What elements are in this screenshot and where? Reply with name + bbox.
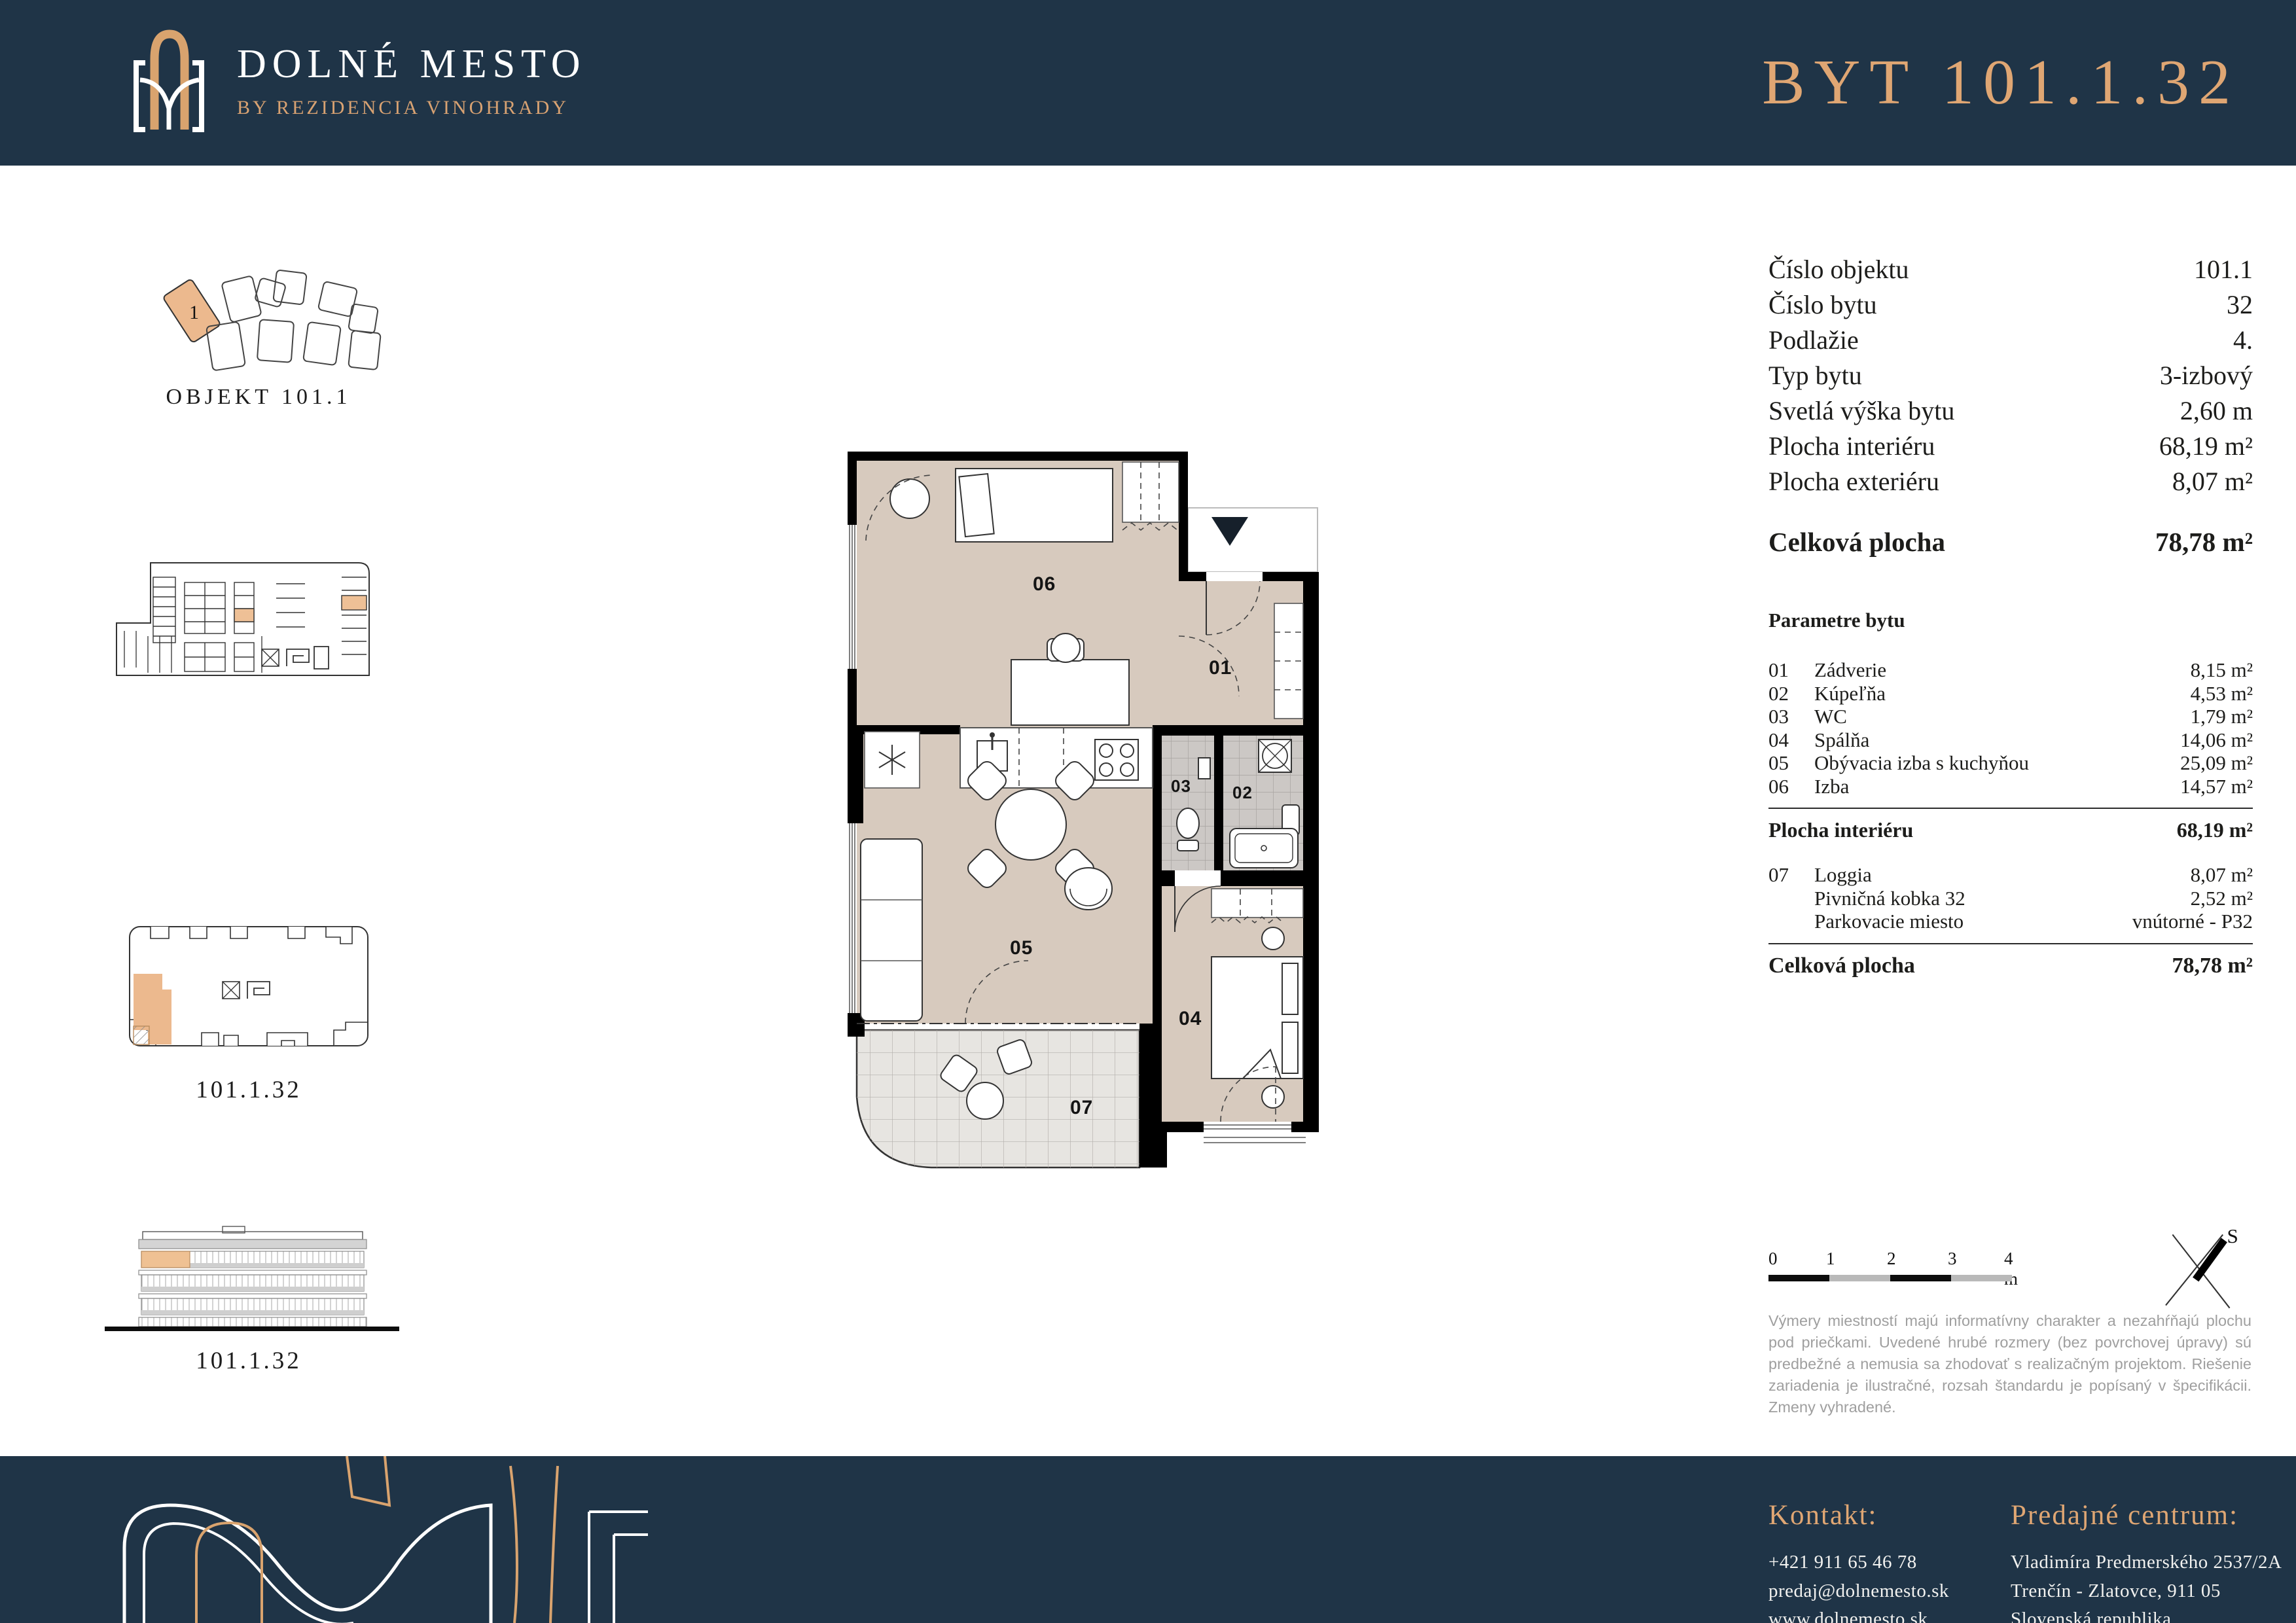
dm-monogram-icon bbox=[126, 25, 212, 135]
north-label: S bbox=[2227, 1225, 2238, 1247]
room-05-label: 05 bbox=[1010, 937, 1033, 959]
footer-sales-center: Predajné centrum: Vladimíra Predmerského… bbox=[2011, 1499, 2282, 1623]
elevation-caption: 101.1.32 bbox=[128, 1347, 370, 1375]
scale-label: 0 bbox=[1768, 1249, 1778, 1269]
site-highlight-label: 1 bbox=[189, 302, 199, 323]
room-07-label: 07 bbox=[1070, 1097, 1093, 1118]
parameters-title: Parametre bytu bbox=[1768, 609, 2253, 632]
detail-row: Svetlá výška bytu2,60 m bbox=[1768, 398, 2253, 424]
scale-label: 1 bbox=[1826, 1249, 1835, 1269]
detail-row: Podlažie4. bbox=[1768, 327, 2253, 353]
parameter-row: Pivničná kobka 322,52 m² bbox=[1768, 888, 2253, 910]
room-03-label: 03 bbox=[1171, 776, 1191, 796]
floor-key-diagram bbox=[124, 921, 373, 1065]
building-elevation-diagram bbox=[98, 1222, 406, 1337]
sales-address-1: Vladimíra Predmerského 2537/2A bbox=[2011, 1548, 2282, 1577]
parameter-row: 05Obývacia izba s kuchyňou25,09 m² bbox=[1768, 753, 2253, 774]
parameter-row: 01Zádverie8,15 m² bbox=[1768, 660, 2253, 681]
apartment-parameters: Parametre bytu 01Zádverie8,15 m² 02Kúpeľ… bbox=[1768, 609, 2253, 978]
parameter-row: 07Loggia8,07 m² bbox=[1768, 865, 2253, 886]
scale-label: 3 bbox=[1948, 1249, 1957, 1269]
north-compass-icon: S bbox=[2159, 1225, 2244, 1313]
contact-title: Kontakt: bbox=[1768, 1499, 1949, 1531]
header-bar: DOLNÉ MESTO BY REZIDENCIA VINOHRADY BYT … bbox=[0, 0, 2296, 166]
contact-website[interactable]: www.dolnemesto.sk bbox=[1768, 1605, 1949, 1623]
apartment-details: Číslo objektu101.1 Číslo bytu32 Podlažie… bbox=[1768, 257, 2253, 558]
scale-bar: 0 1 2 3 4 m bbox=[1768, 1249, 2012, 1287]
garage-plan-diagram bbox=[111, 558, 373, 682]
brochure-page: DOLNÉ MESTO BY REZIDENCIA VINOHRADY BYT … bbox=[0, 0, 2296, 1623]
parameter-row: 04Spálňa14,06 m² bbox=[1768, 730, 2253, 751]
detail-row: Plocha exteriéru8,07 m² bbox=[1768, 469, 2253, 495]
brand-subtitle: BY REZIDENCIA VINOHRADY bbox=[237, 97, 586, 119]
scale-label: 2 bbox=[1887, 1249, 1896, 1269]
brand-title: DOLNÉ MESTO bbox=[237, 41, 586, 88]
common-corridor bbox=[1188, 508, 1318, 572]
room-01-label: 01 bbox=[1209, 657, 1232, 679]
footer-contact: Kontakt: +421 911 65 46 78 predaj@dolnem… bbox=[1768, 1499, 1949, 1623]
contact-email[interactable]: predaj@dolnemesto.sk bbox=[1768, 1577, 1949, 1606]
contact-phone: +421 911 65 46 78 bbox=[1768, 1548, 1949, 1577]
total-area-row-2: Celková plocha78,78 m² bbox=[1768, 954, 2253, 978]
divider bbox=[1768, 808, 2253, 809]
parameter-row: Parkovacie miestovnútorné - P32 bbox=[1768, 911, 2253, 933]
room-04-label: 04 bbox=[1179, 1008, 1202, 1029]
detail-row: Číslo objektu101.1 bbox=[1768, 257, 2253, 283]
detail-row: Plocha interiéru68,19 m² bbox=[1768, 433, 2253, 459]
apartment-title: BYT 101.1.32 bbox=[1762, 46, 2240, 119]
scale-label: 4 m bbox=[2004, 1249, 2018, 1289]
interior-area-row: Plocha interiéru68,19 m² bbox=[1768, 818, 2253, 842]
divider bbox=[1768, 943, 2253, 944]
footer-bar: Kontakt: +421 911 65 46 78 predaj@dolnem… bbox=[0, 1456, 2296, 1623]
apartment-floor-plan: 06 01 bbox=[848, 452, 1319, 1178]
disclaimer-text: Výmery miestností majú informatívny char… bbox=[1768, 1310, 2251, 1418]
room-02-label: 02 bbox=[1232, 783, 1253, 802]
sales-title: Predajné centrum: bbox=[2011, 1499, 2282, 1531]
detail-row: Typ bytu3-izbový bbox=[1768, 363, 2253, 389]
site-plan-diagram: 1 bbox=[134, 259, 383, 380]
floor-key-caption: 101.1.32 bbox=[128, 1076, 370, 1104]
detail-row: Číslo bytu32 bbox=[1768, 292, 2253, 318]
footer-monogram-icon bbox=[59, 1456, 648, 1623]
parameter-row: 03WC1,79 m² bbox=[1768, 706, 2253, 728]
site-plan-caption: OBJEKT 101.1 bbox=[137, 385, 380, 410]
sales-address-3: Slovenská republika bbox=[2011, 1605, 2282, 1623]
parameter-row: 06Izba14,57 m² bbox=[1768, 776, 2253, 798]
parameter-row: 02Kúpeľňa4,53 m² bbox=[1768, 683, 2253, 705]
brand-logo: DOLNÉ MESTO BY REZIDENCIA VINOHRADY bbox=[126, 25, 586, 135]
brand-text: DOLNÉ MESTO BY REZIDENCIA VINOHRADY bbox=[237, 41, 586, 119]
room-06-label: 06 bbox=[1033, 573, 1056, 595]
total-area-row: Celková plocha 78,78 m² bbox=[1768, 526, 2253, 558]
sales-address-2: Trenčín - Zlatovce, 911 05 bbox=[2011, 1577, 2282, 1606]
